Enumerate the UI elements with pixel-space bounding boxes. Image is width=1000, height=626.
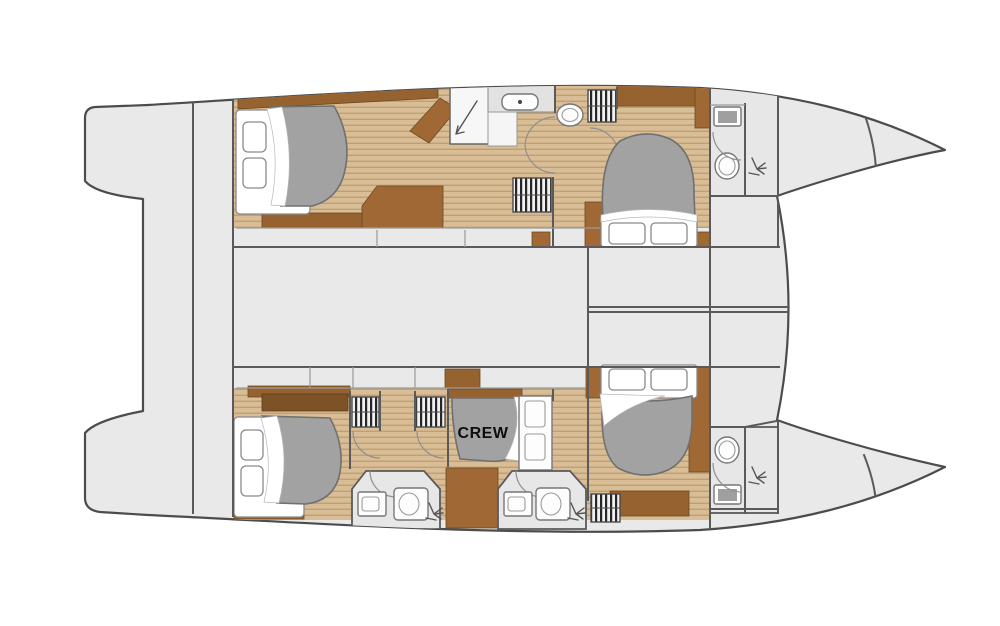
pillow: [651, 369, 687, 390]
toilet-icon: [557, 104, 583, 126]
crew-cabin-label: CREW: [458, 425, 509, 442]
cabin-shelf: [617, 85, 697, 106]
pillow: [609, 369, 645, 390]
crew-door-panel: [519, 396, 552, 470]
shower-stall: [450, 86, 490, 144]
catamaran-floorplan: CREW: [0, 0, 1000, 626]
pillow: [241, 430, 263, 460]
cabin-shelf: [262, 213, 362, 228]
faucet-dot: [518, 100, 522, 104]
pillow: [243, 158, 266, 188]
stbd-side-deck-band: [233, 367, 588, 388]
bench: [362, 186, 443, 228]
pillow: [241, 466, 263, 496]
double-bed: [236, 106, 347, 214]
double-bed: [601, 134, 697, 247]
pillow: [651, 223, 687, 244]
bathroom-divider-cabinet: [446, 468, 498, 528]
pillow: [609, 223, 645, 244]
stbd-bathroom-a: [352, 471, 443, 529]
stbd-bathroom-b: [498, 471, 586, 529]
starboard-hull-interior: [233, 365, 778, 529]
floorplan-image: CREW: [0, 0, 1000, 626]
double-bed: [600, 365, 697, 475]
pillow: [243, 122, 266, 152]
cabinet: [488, 112, 517, 146]
port-hull-interior: [233, 78, 778, 248]
duvet: [602, 134, 695, 219]
